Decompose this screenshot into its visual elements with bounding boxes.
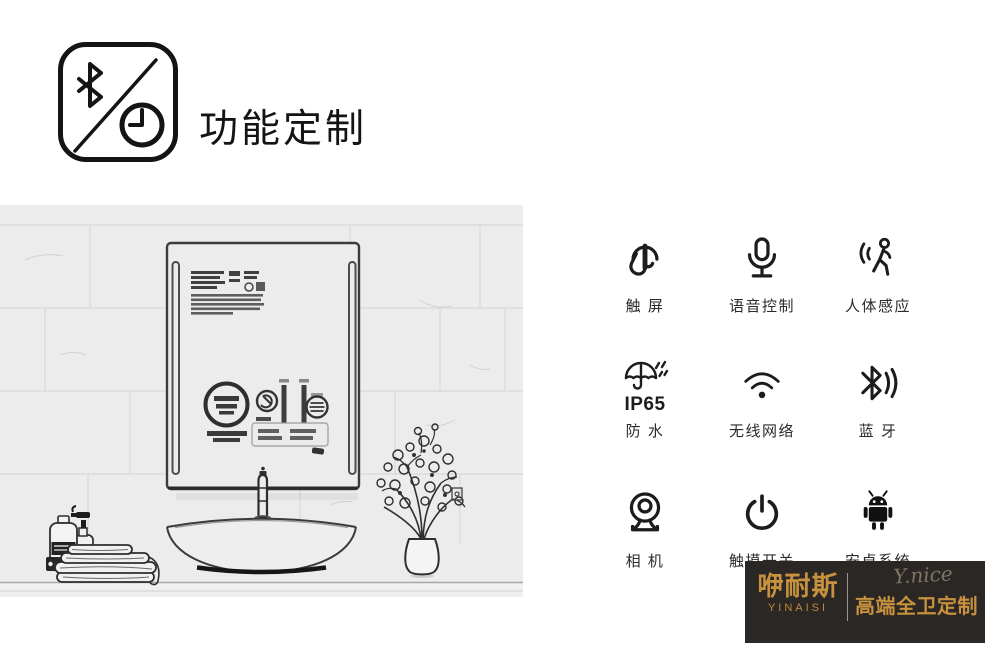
feature-android: 安卓系统 <box>828 487 928 569</box>
power-icon <box>736 487 788 539</box>
feature-label: 防 水 <box>626 424 665 439</box>
feature-bluetooth: 蓝 牙 <box>828 357 928 439</box>
feature-touch-screen: 触 屏 <box>595 232 695 314</box>
bathroom-sketch-image <box>0 205 523 597</box>
feature-waterproof: IP65 防 水 <box>595 357 695 439</box>
feature-label: 语音控制 <box>729 299 795 314</box>
feature-label: 人体感应 <box>845 299 911 314</box>
feature-badge <box>58 42 178 162</box>
brand-tagline: 高端全卫定制 <box>855 590 981 619</box>
feature-label: 蓝 牙 <box>859 424 898 439</box>
brand-script-logo: Y.nice <box>872 560 973 589</box>
microphone-icon <box>736 232 788 284</box>
feature-label: 触 屏 <box>626 299 665 314</box>
android-icon <box>852 487 904 539</box>
feature-touch-switch: 触摸开关 <box>712 487 812 569</box>
page: 功能定制 <box>0 0 1000 657</box>
feature-label: 相 机 <box>626 554 665 569</box>
brand-name-block: 咿耐斯 YINAISI <box>753 572 843 614</box>
waterproof-icon <box>619 359 671 393</box>
brand-name-cn: 咿耐斯 <box>753 572 843 601</box>
page-title: 功能定制 <box>199 110 367 149</box>
camera-icon <box>619 487 671 539</box>
feature-voice-control: 语音控制 <box>712 232 812 314</box>
wifi-icon <box>736 357 788 409</box>
ip-rating: IP65 <box>624 395 665 414</box>
brand-divider <box>847 573 848 621</box>
bluetooth-clock-icon <box>63 47 173 157</box>
feature-human-sensor: 人体感应 <box>828 232 928 314</box>
feature-wifi: 无线网络 <box>712 357 812 439</box>
feature-label: 无线网络 <box>729 424 795 439</box>
brand-name-en: YINAISI <box>753 603 843 614</box>
bluetooth-icon <box>852 357 904 409</box>
touch-icon <box>619 232 671 284</box>
feature-camera: 相 机 <box>595 487 695 569</box>
motion-sensor-icon <box>852 232 904 284</box>
brand-banner: 咿耐斯 YINAISI Y.nice 高端全卫定制 <box>745 561 985 643</box>
